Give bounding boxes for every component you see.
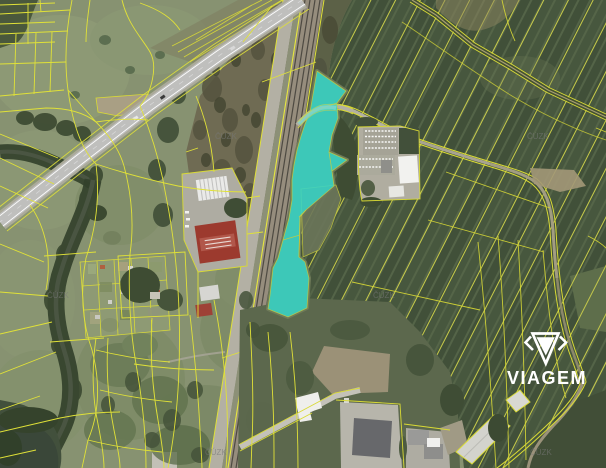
svg-text:VIAGEM: VIAGEM: [507, 368, 587, 388]
svg-text:ČÚZK: ČÚZK: [47, 291, 69, 300]
svg-text:ČÚZK: ČÚZK: [373, 291, 395, 300]
svg-text:ČÚZK: ČÚZK: [215, 132, 237, 141]
svg-text:ČÚZK: ČÚZK: [205, 448, 227, 457]
svg-text:ČÚZK: ČÚZK: [530, 448, 552, 457]
svg-text:ČÚZK: ČÚZK: [527, 132, 549, 141]
